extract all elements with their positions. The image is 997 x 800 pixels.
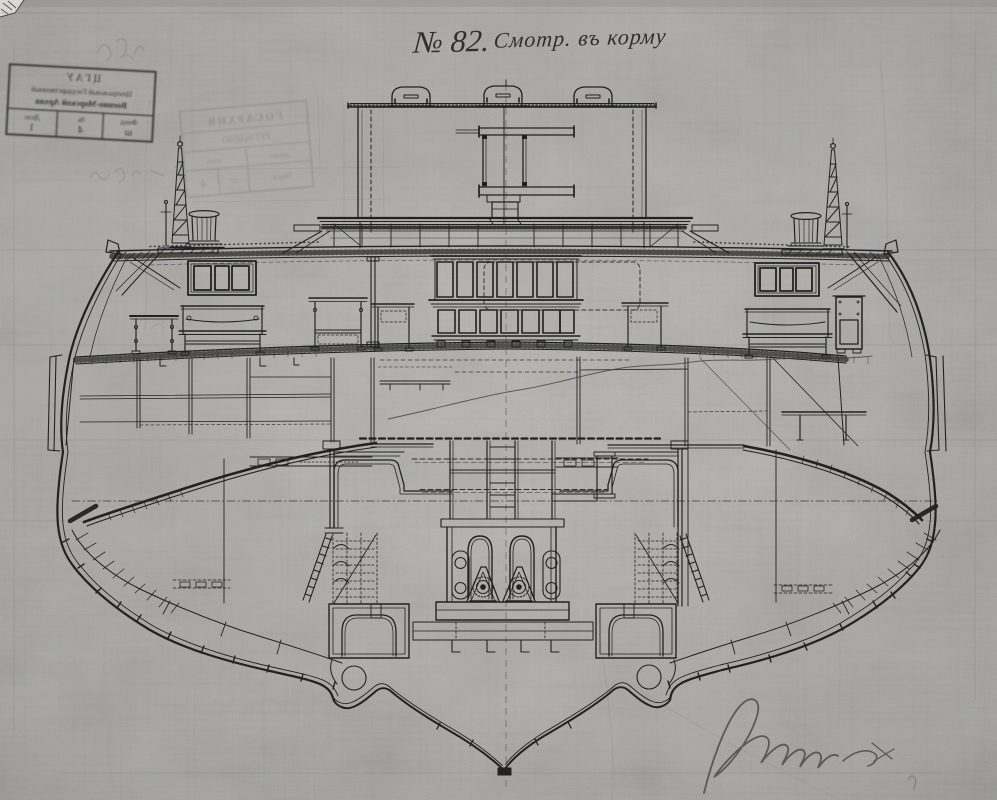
- svg-text:№шл: №шл: [273, 170, 294, 182]
- svg-text:Дело: Дело: [24, 113, 40, 122]
- svg-text:ЦГАУ: ЦГАУ: [63, 72, 101, 85]
- svg-text:Фонд: Фонд: [120, 118, 137, 127]
- svg-text:4: 4: [78, 125, 84, 136]
- svg-text:№ 82.: № 82.: [411, 23, 490, 60]
- svg-text:Смотр. въ корму: Смотр. въ корму: [493, 23, 668, 53]
- svg-text:гг: гг: [230, 175, 238, 186]
- svg-text:№: №: [77, 116, 84, 124]
- svg-text:опись: опись: [206, 157, 223, 165]
- svg-text:ш: ш: [124, 127, 133, 138]
- svg-text:1: 1: [29, 122, 35, 133]
